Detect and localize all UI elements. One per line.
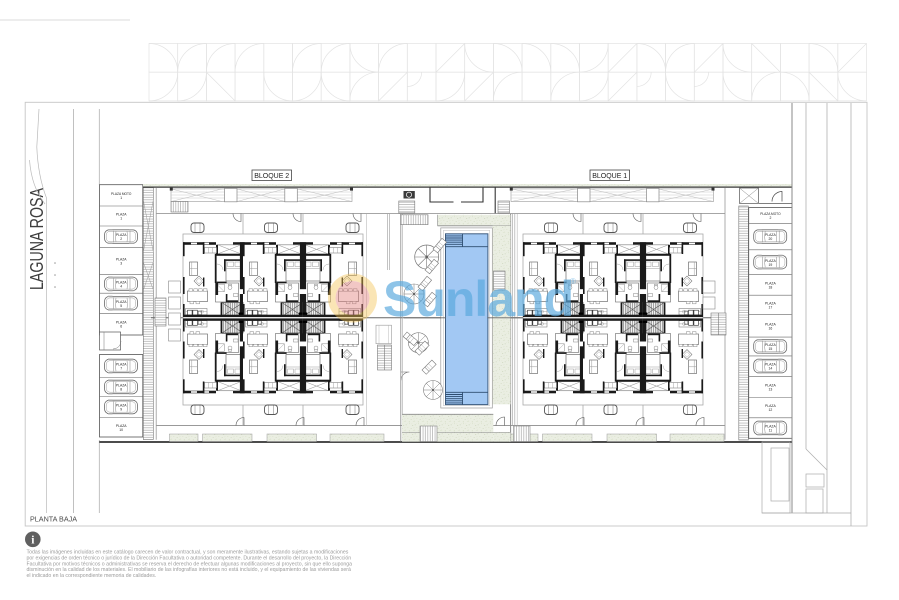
svg-text:Sunland: Sunland — [383, 271, 573, 327]
svg-text:16: 16 — [769, 326, 773, 330]
svg-text:6: 6 — [120, 325, 122, 329]
svg-text:BLOQUE 2: BLOQUE 2 — [254, 173, 289, 180]
svg-text:12: 12 — [769, 408, 773, 412]
svg-text:8: 8 — [120, 388, 122, 392]
svg-text:1: 1 — [120, 196, 122, 200]
svg-text:1: 1 — [120, 217, 122, 221]
svg-text:13: 13 — [769, 387, 773, 391]
svg-text:BLOQUE 1: BLOQUE 1 — [592, 173, 627, 180]
svg-text:11: 11 — [769, 429, 773, 433]
svg-text:15: 15 — [769, 347, 773, 351]
svg-text:14: 14 — [769, 367, 773, 371]
svg-text:2: 2 — [769, 216, 771, 220]
svg-text:4: 4 — [120, 284, 122, 288]
svg-text:el indicado en la correspondie: el indicado en la correspondiente memori… — [27, 573, 157, 579]
svg-text:19: 19 — [769, 263, 773, 267]
svg-text:9: 9 — [120, 408, 122, 412]
svg-text:7: 7 — [120, 367, 122, 371]
svg-text:®: ® — [570, 277, 576, 286]
svg-text:3: 3 — [120, 262, 122, 266]
svg-text:PLANTA BAJA: PLANTA BAJA — [30, 515, 77, 524]
svg-text:5: 5 — [120, 304, 122, 308]
svg-text:2: 2 — [120, 237, 122, 241]
svg-text:10: 10 — [119, 428, 123, 432]
svg-text:18: 18 — [769, 285, 773, 289]
svg-text:20: 20 — [769, 237, 773, 241]
svg-text:17: 17 — [769, 305, 773, 309]
